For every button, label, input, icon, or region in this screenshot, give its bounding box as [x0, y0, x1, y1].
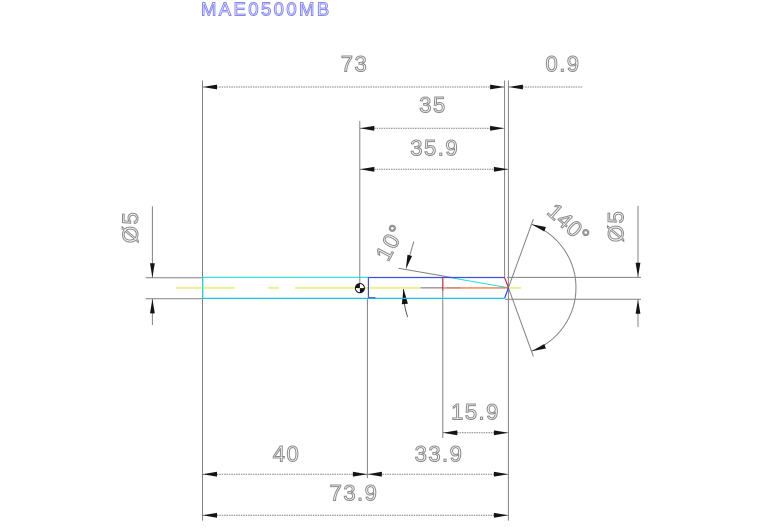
svg-text:73.9: 73.9	[330, 481, 379, 506]
svg-text:35.9: 35.9	[410, 136, 459, 161]
svg-text:40: 40	[273, 442, 300, 467]
svg-text:MAE0500MB: MAE0500MB	[201, 0, 332, 20]
svg-text:Ø5: Ø5	[604, 210, 629, 242]
svg-text:73: 73	[341, 52, 368, 77]
svg-text:0.9: 0.9	[545, 52, 580, 77]
svg-text:33.9: 33.9	[415, 442, 464, 467]
svg-text:15.9: 15.9	[451, 400, 500, 425]
svg-text:Ø5: Ø5	[118, 211, 143, 243]
svg-text:35: 35	[419, 93, 446, 118]
